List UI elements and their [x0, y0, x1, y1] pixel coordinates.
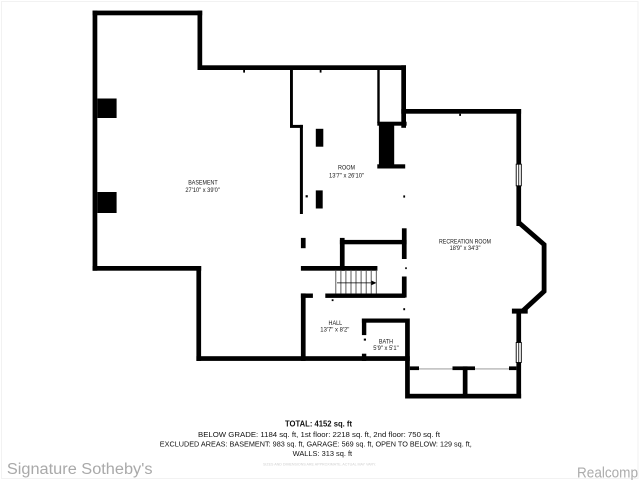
svg-text:BELOW GRADE: 1184 sq. ft, 1st: BELOW GRADE: 1184 sq. ft, 1st floor: 221… [198, 430, 441, 439]
svg-text:Signature Sotheby's: Signature Sotheby's [7, 461, 153, 478]
svg-text:Realcomp: Realcomp [577, 464, 638, 480]
svg-text:5'9" x 5'1": 5'9" x 5'1" [373, 345, 399, 352]
svg-text:18'9" x 34'3": 18'9" x 34'3" [450, 245, 481, 252]
svg-text:13'7" x 26'10": 13'7" x 26'10" [329, 172, 364, 179]
svg-text:TOTAL: 4152 sq. ft: TOTAL: 4152 sq. ft [285, 420, 352, 429]
svg-text:EXCLUDED AREAS: BASEMENT: 983: EXCLUDED AREAS: BASEMENT: 983 sq. ft, GA… [160, 440, 472, 449]
svg-text:BASEMENT: BASEMENT [188, 180, 218, 187]
svg-text:ROOM: ROOM [338, 165, 355, 172]
svg-text:WALLS: 313 sq. ft: WALLS: 313 sq. ft [293, 449, 353, 458]
svg-text:27'10" x 39'0": 27'10" x 39'0" [185, 187, 220, 194]
svg-text:SIZES AND DIMENSIONS ARE APPRO: SIZES AND DIMENSIONS ARE APPROXIMATE, AC… [263, 463, 376, 467]
svg-text:13'7" x 8'2": 13'7" x 8'2" [320, 326, 350, 333]
